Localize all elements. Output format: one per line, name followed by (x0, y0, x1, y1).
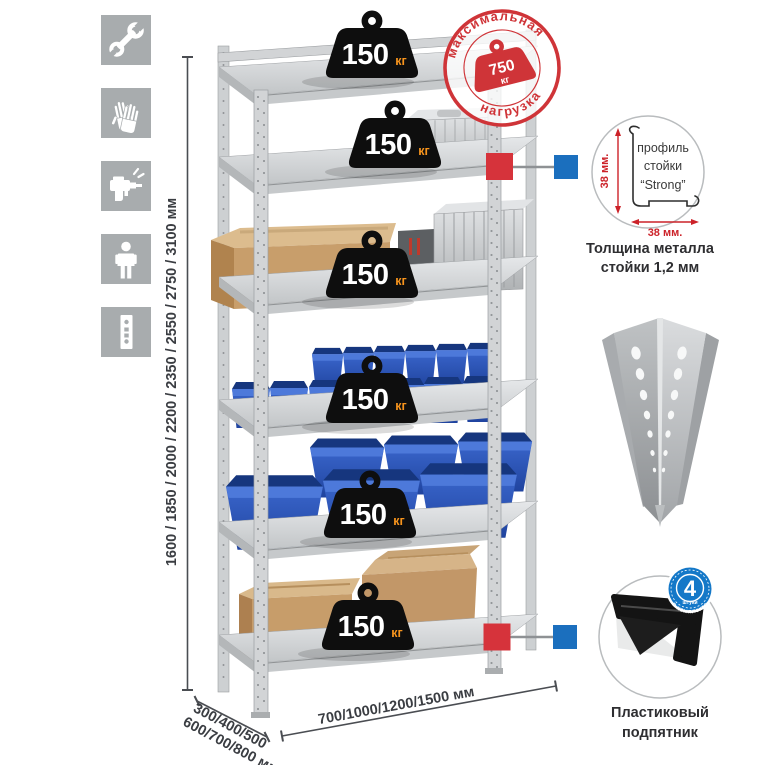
callout-marker-blue (554, 155, 578, 179)
product-infographic: 150 кг (0, 0, 765, 765)
profile-label-line2: стойки (644, 159, 682, 173)
height-dimension-label: 1600 / 1850 / 2000 / 2200 / 2350 / 2550 … (164, 198, 180, 566)
quantity-badge: 4 штуки в комплекте (666, 565, 714, 615)
rack-post-back-right (526, 30, 536, 650)
foot-caption-line2: подпятник (622, 725, 699, 741)
perforated-post-icon (101, 307, 151, 357)
wrench-icon (101, 15, 151, 65)
callout-marker-red (484, 624, 511, 651)
quantity-badge-small-text: штуки (682, 600, 697, 606)
callout-marker-blue (553, 625, 577, 649)
thickness-caption-line1: Толщина металла (586, 241, 715, 257)
rack-post-front-left (251, 90, 270, 718)
drill-icon (101, 161, 151, 211)
callout-marker-red (486, 153, 513, 180)
person-icon (101, 234, 151, 284)
profile-label-line1: профиль (637, 141, 689, 155)
foot-caption-line1: Пластиковый (611, 705, 709, 721)
quantity-badge-value: 4 (684, 576, 697, 601)
thickness-caption-line2: стойки 1,2 мм (601, 260, 700, 276)
profile-vertical-dim-label: 38 мм. (599, 154, 611, 189)
gloves-icon (101, 88, 151, 138)
profile-horizontal-dim-label: 38 мм. (648, 227, 683, 239)
profile-label-line3: “Strong” (640, 178, 685, 192)
rack-post-back-left (218, 46, 229, 692)
infographic-canvas: 150 кг (0, 0, 765, 765)
